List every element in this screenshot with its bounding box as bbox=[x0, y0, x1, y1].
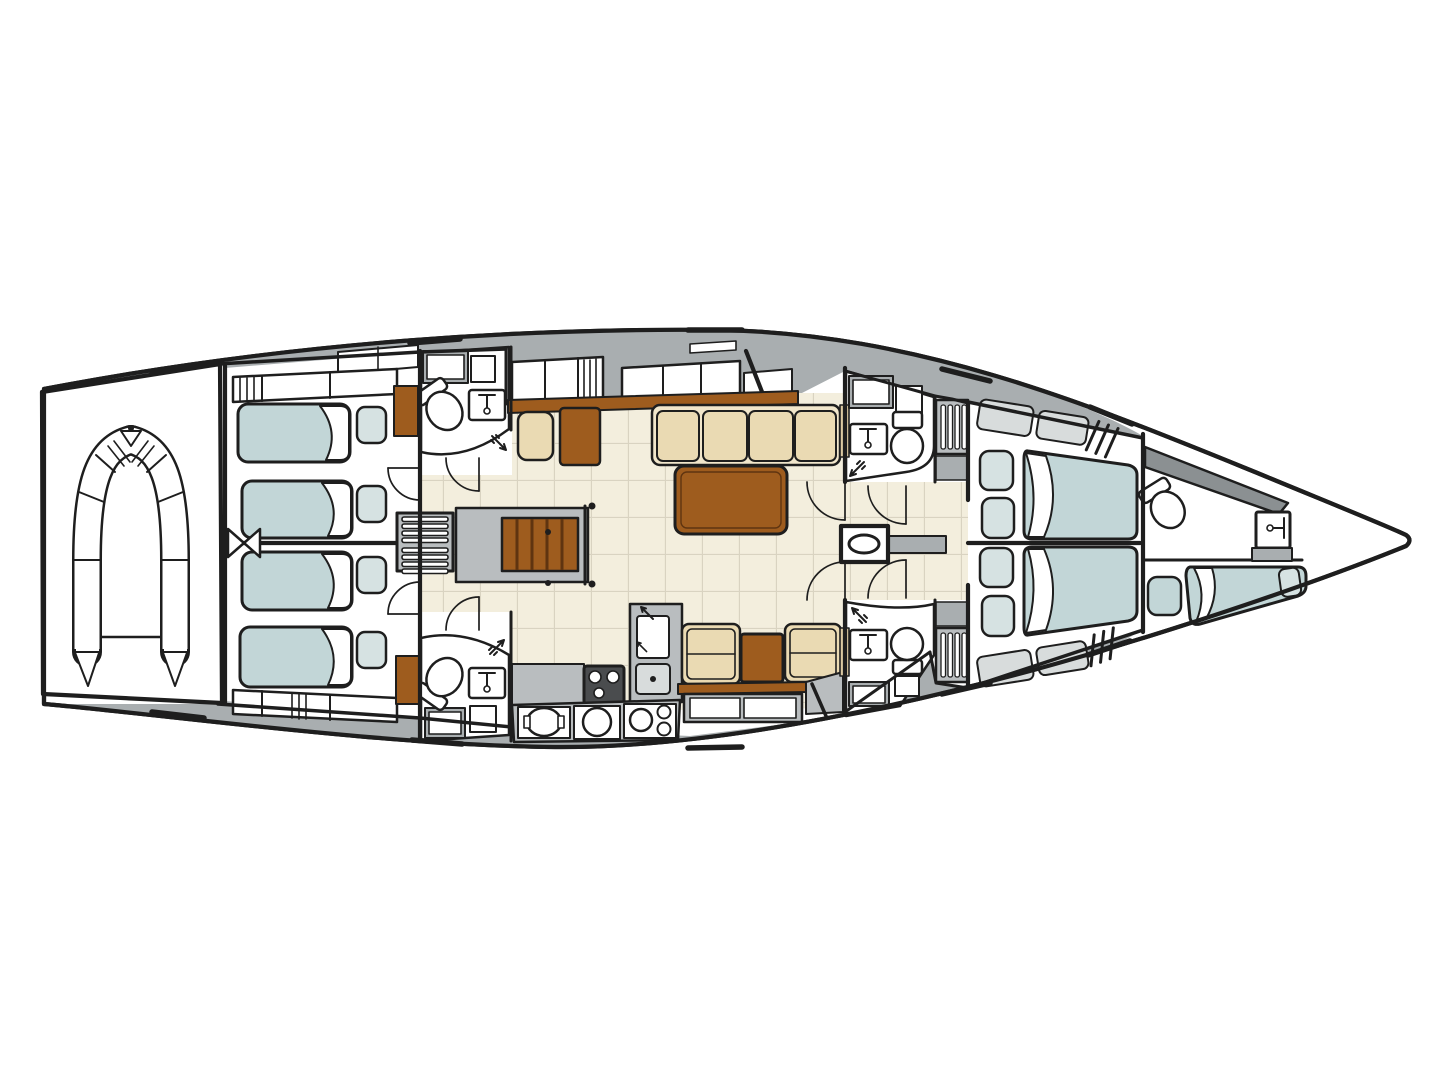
companionway bbox=[456, 503, 596, 588]
washbasin bbox=[469, 668, 505, 698]
pillow bbox=[357, 632, 386, 668]
hanging-locker bbox=[936, 400, 968, 454]
yacht-deck-plan bbox=[0, 0, 1450, 1087]
door-stop bbox=[589, 581, 596, 588]
door-stop bbox=[589, 503, 596, 510]
sofa-cushion bbox=[703, 411, 747, 461]
table-socket bbox=[545, 580, 551, 586]
washbasin bbox=[1252, 512, 1292, 561]
seat-cushion bbox=[1148, 577, 1181, 615]
washbasin bbox=[850, 424, 887, 454]
fwd-head-port bbox=[840, 371, 934, 481]
counter-left bbox=[512, 664, 584, 708]
pillow bbox=[357, 407, 386, 443]
pillow bbox=[357, 557, 386, 593]
shower-tray bbox=[895, 676, 919, 696]
counter-bottom-row bbox=[512, 700, 680, 742]
shower-tray bbox=[471, 356, 495, 382]
toilet bbox=[891, 412, 923, 463]
crew-berth bbox=[1186, 567, 1306, 624]
sofa-cushion bbox=[657, 411, 699, 461]
pillow bbox=[982, 596, 1014, 636]
deck-plan-drawing bbox=[0, 0, 1450, 1087]
filler bbox=[936, 456, 968, 480]
engine-compartment bbox=[397, 513, 453, 574]
dining-table bbox=[675, 466, 787, 534]
dinette-table bbox=[741, 634, 783, 682]
stove bbox=[584, 666, 624, 704]
pillow bbox=[980, 451, 1013, 490]
pillow bbox=[980, 548, 1013, 587]
round-sink bbox=[583, 708, 611, 736]
dinette bbox=[678, 624, 843, 722]
tender-garage bbox=[42, 364, 222, 703]
dinette-plinth bbox=[678, 682, 808, 694]
filler bbox=[936, 602, 968, 626]
sofa-cushion bbox=[749, 411, 793, 461]
basin-plinth bbox=[1252, 548, 1292, 561]
stair-steps bbox=[502, 518, 578, 571]
aft-cabin-starboard bbox=[233, 552, 397, 722]
round-burner bbox=[630, 709, 652, 731]
table-socket bbox=[545, 529, 551, 535]
washbasin bbox=[469, 390, 505, 420]
mast-section bbox=[849, 535, 879, 553]
nav-seat bbox=[518, 412, 553, 460]
deck-hatch-sliver bbox=[690, 341, 736, 353]
step-plate bbox=[888, 536, 946, 553]
washbasin bbox=[850, 630, 887, 660]
pillow bbox=[982, 498, 1014, 538]
entry-step bbox=[396, 656, 420, 704]
sink-unit bbox=[630, 604, 682, 702]
gimbal-sink bbox=[527, 708, 561, 736]
pillow bbox=[357, 486, 386, 522]
garage-wall bbox=[42, 364, 222, 703]
nav-desk bbox=[560, 408, 600, 465]
salon-sofa bbox=[652, 405, 840, 465]
entry-step bbox=[394, 386, 418, 436]
sink-basin bbox=[637, 616, 669, 658]
sofa-cushion bbox=[795, 411, 836, 461]
shower-tray bbox=[470, 706, 496, 732]
hanging-locker bbox=[936, 628, 968, 682]
